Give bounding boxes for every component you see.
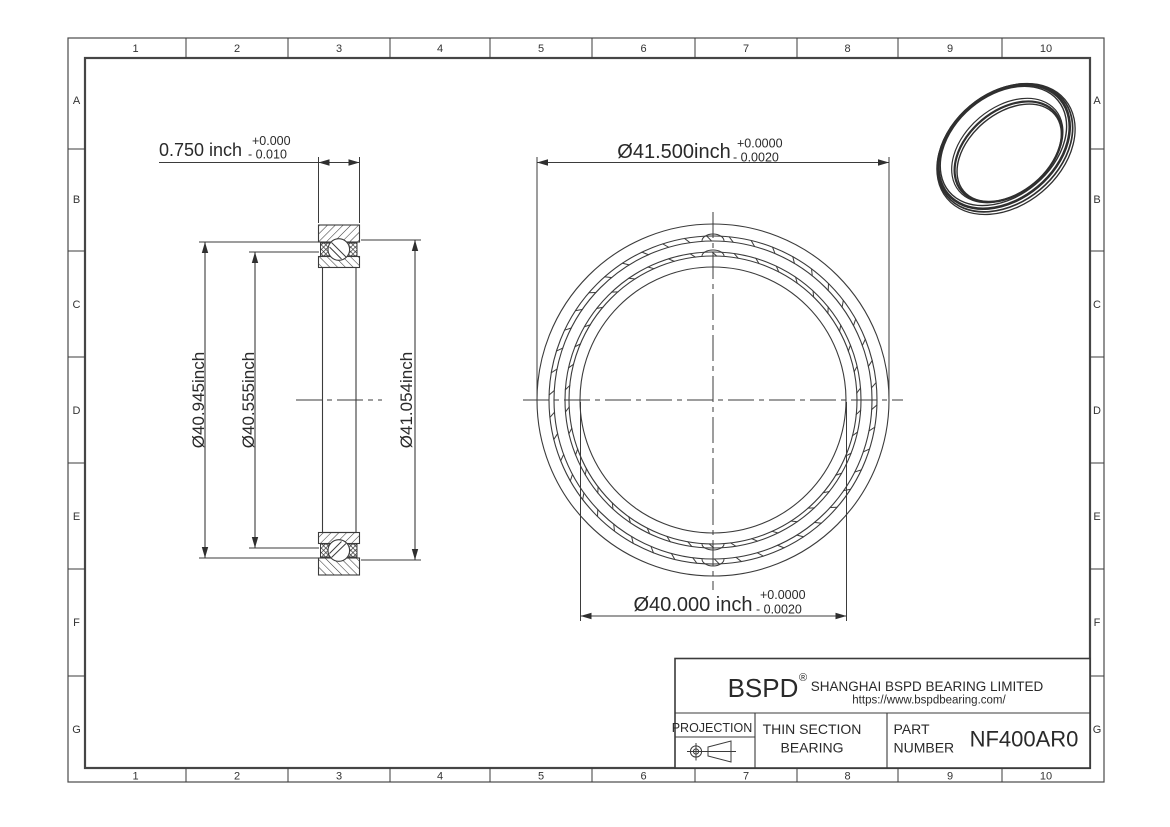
grid-row-label: D [1093,405,1101,417]
company-website: https://www.bspdbearing.com/ [852,695,1006,707]
cage-tick [868,360,872,367]
cage-tick [604,277,612,278]
grid-col-label: 10 [1040,43,1052,55]
drawing-sheet: 1 2 3 4 5 6 7 8 9 10 1 2 3 4 5 6 7 8 9 1… [0,0,1170,827]
grid-col-label: 1 [132,43,138,55]
bore-dim-tol-plus: +0.0000 [760,588,806,602]
cage-tick [814,522,822,523]
arrowhead [349,159,360,165]
arrowhead [319,159,330,165]
grid-col-label: 5 [538,771,544,783]
grid-row-label: C [73,299,81,311]
cage-tick [813,291,814,298]
cage-tick [842,300,843,308]
grid-col-label: 6 [640,43,646,55]
od-dim-tol-minus: - 0.0020 [733,151,779,165]
cage-tick [871,382,876,388]
cage-tick [642,252,649,255]
cage-tick [854,366,857,372]
grid-col-label: 3 [336,43,342,55]
grid-row-label: C [1093,299,1101,311]
grid-row-label: B [1093,194,1100,206]
grid-col-label: 9 [947,43,953,55]
cage-tick [628,278,635,279]
cage-tick [684,238,690,243]
grid-col-label: 7 [743,43,749,55]
drawing-canvas: 1 2 3 4 5 6 7 8 9 10 1 2 3 4 5 6 7 8 9 1… [0,0,1170,827]
cage-tick [772,531,779,533]
cage-tick [622,263,630,265]
grid-row-label: F [73,617,80,629]
product-type-line1: THIN SECTION [763,721,862,737]
cage-tick [668,259,675,262]
dia-dim-text: Ø40.945inch [189,352,208,448]
bore-dim-text: Ø40.000 inch [634,594,753,616]
title-block: BSPD ® SHANGHAI BSPD BEARING LIMITED htt… [672,659,1090,769]
grid-labels-left: A B C D E F G [72,95,81,736]
cage-tick [714,559,719,565]
cage-tick [569,428,572,434]
cage-tick [690,254,696,258]
cage-tick [730,543,736,547]
part-label-line1: PART [894,721,930,737]
cage-tick [757,553,764,557]
company-name: SHANGHAI BSPD BEARING LIMITED [811,679,1044,694]
row-ticks [68,149,1104,676]
cage-tick [862,339,865,346]
grid-col-label: 10 [1040,771,1052,783]
grid-col-label: 2 [234,771,240,783]
grid-col-label: 3 [336,771,342,783]
cage-tick [707,236,712,242]
grid-row-label: B [73,194,80,206]
grid-col-label: 9 [947,771,953,783]
grid-col-label: 2 [234,43,240,55]
cage-tick [751,539,758,542]
cage-tick [853,319,855,326]
product-type-line2: BEARING [780,740,843,756]
width-dim-text: 0.750 inch [159,140,242,160]
od-dim-text: Ø41.500inch [617,141,730,163]
isometric-view [911,57,1101,242]
od-dim-tol-plus: +0.0000 [737,137,783,151]
width-dim-tol-minus: - 0.010 [248,148,287,162]
bore-dim-tol-minus: - 0.0020 [756,603,802,617]
registered-mark-icon: ® [799,672,807,684]
grid-labels-right: A B C D E F G [1093,95,1102,736]
cage-tick [648,267,655,269]
cage-tick [583,492,584,500]
grid-row-label: A [1093,95,1101,107]
grid-row-label: G [1093,724,1102,736]
grid-col-label: 6 [640,771,646,783]
grid-col-label: 4 [437,771,443,783]
section-view: 0.750 inch +0.000 - 0.010 Ø40.945inch Ø4… [159,134,421,575]
part-number: NF400AR0 [970,727,1079,752]
cage-tick [791,521,798,522]
grid-col-label: 5 [538,43,544,55]
cage-tick [777,545,784,548]
cage-tick [736,557,742,562]
grid-row-label: G [72,724,81,736]
grid-col-label: 4 [437,43,443,55]
cage-tick [585,468,586,475]
width-dim-tol-plus: +0.000 [252,134,291,148]
dia-dim-text: Ø41.054inch [397,352,416,448]
cage-tick [662,244,669,248]
cage-tick [796,535,804,537]
company-logo: BSPD [728,673,799,703]
grid-row-label: E [1093,511,1100,523]
grid-col-label: 7 [743,771,749,783]
cage-tick [561,454,564,461]
grid-col-label: 1 [132,771,138,783]
grid-col-label: 8 [844,43,850,55]
dia-dim-text: Ø40.555inch [239,352,258,448]
cage-tick [840,325,841,332]
grid-col-label: 8 [844,771,850,783]
front-view: Ø41.500inch +0.0000 - 0.0020 Ø40.000 inc… [523,137,903,622]
cage-tick [550,412,555,418]
cage-tick [570,474,572,481]
grid-row-label: E [73,511,80,523]
cage-tick [575,449,577,456]
cage-tick [612,503,613,510]
projection-label: PROJECTION [672,721,753,735]
cage-tick [848,345,850,352]
grid-row-label: A [73,95,81,107]
grid-row-label: D [73,405,81,417]
bearing-section-geometry [296,225,382,575]
cage-tick [554,433,558,440]
grid-row-label: F [1094,617,1101,629]
part-label-line2: NUMBER [894,740,955,756]
